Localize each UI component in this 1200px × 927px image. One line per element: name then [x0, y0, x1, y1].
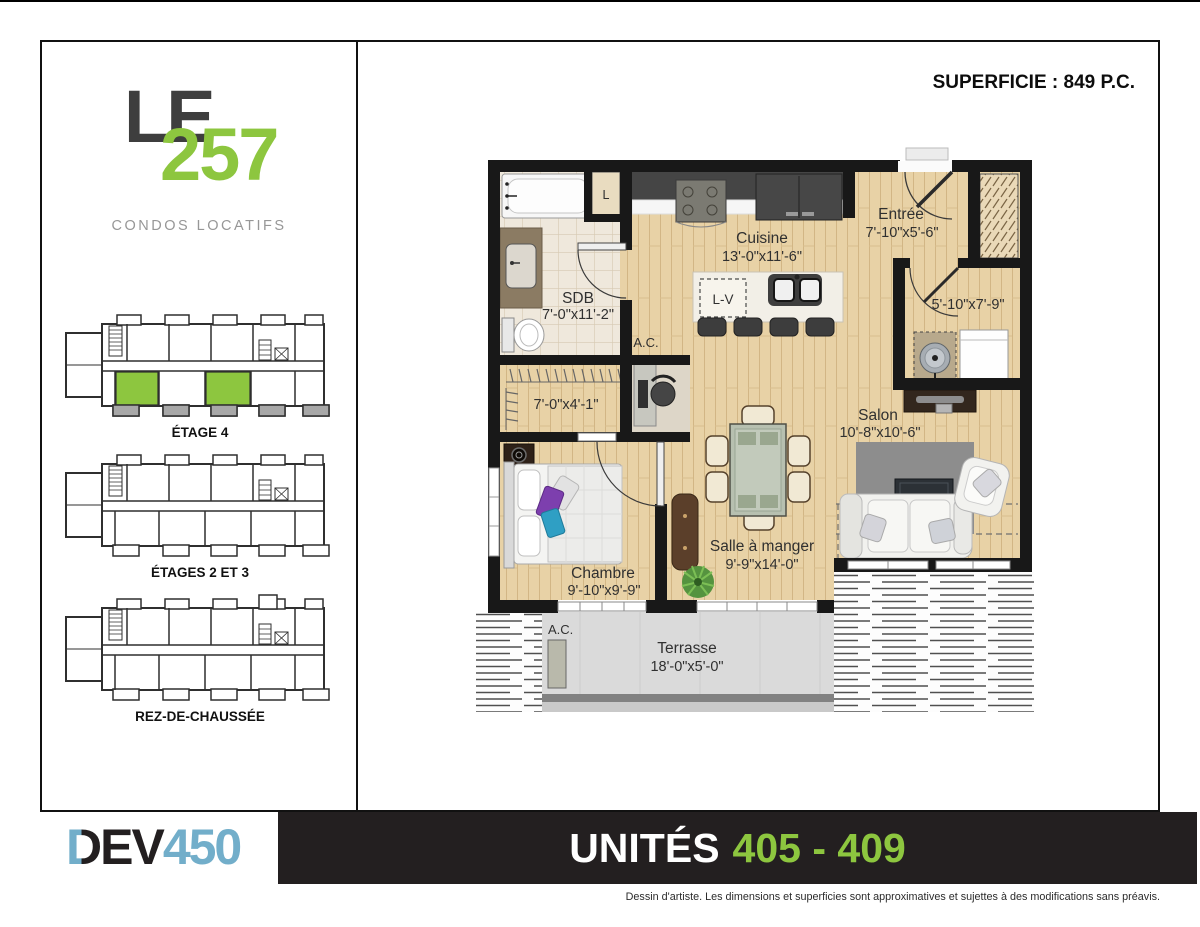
- headboard: [504, 462, 514, 568]
- building-plan-etages-2-3: ÉTAGES 2 ET 3: [63, 450, 337, 580]
- room-label-entree: Entrée: [878, 206, 924, 223]
- plan-panel: SUPERFICIE : 849 P.C.: [358, 42, 1158, 810]
- dev450-logo-d: D: [66, 819, 100, 875]
- label-lave-vaisselle: L-V: [712, 292, 733, 307]
- sidebar: LE 257 CONDOS LOCATIFS: [42, 42, 358, 810]
- room-dims-salle-a-manger: 9'-9"x14'-0": [725, 557, 798, 573]
- room-dims-terrasse: 18'-0"x5'-0": [650, 659, 723, 675]
- plant: [682, 566, 714, 598]
- label-ac: A.C.: [633, 335, 658, 350]
- building-plan-etage4-drawing: [63, 310, 335, 424]
- sofa: [840, 494, 972, 558]
- sideboard: [672, 494, 698, 570]
- building-plan-rdc: REZ-DE-CHAUSSÉE: [63, 594, 337, 724]
- disclaimer-text: Dessin d'artiste. Les dimensions et supe…: [626, 891, 1160, 903]
- entry-closet-hangers: [980, 174, 1018, 258]
- logo-tagline: CONDOS LOCATIFS: [42, 218, 356, 234]
- toilet: [502, 318, 544, 352]
- superficie-label: SUPERFICIE : 849 P.C.: [933, 72, 1135, 94]
- building-plan-rdc-drawing: [63, 594, 335, 708]
- page-top-edge: [0, 0, 1200, 2]
- brand-logo: LE 257 CONDOS LOCATIFS: [42, 42, 356, 282]
- stove: [676, 180, 726, 227]
- dev450-logo: DEV450: [66, 822, 240, 872]
- logo-number: 257: [160, 118, 277, 192]
- washer-dryer: [960, 330, 1008, 384]
- pillow: [518, 516, 540, 556]
- dev450-logo-num: 450: [163, 819, 240, 875]
- room-dims-entree: 7'-10"x5'-6": [865, 225, 938, 241]
- neighbor-area-left: [476, 613, 542, 712]
- room-label-cuisine: Cuisine: [736, 230, 788, 247]
- water-heater: [914, 332, 956, 384]
- refrigerator: [756, 174, 842, 220]
- units-banner-label: UNITÉS: [569, 825, 719, 872]
- neighbor-area-right: [834, 572, 1034, 712]
- room-dims-cuisine: 13'-0"x11'-6": [722, 249, 802, 265]
- dev450-logo-ev: EV: [100, 819, 163, 875]
- room-label-salle-a-manger: Salle à manger: [710, 538, 814, 555]
- building-plan-etages-2-3-drawing: [63, 450, 335, 564]
- pillow: [518, 470, 540, 510]
- units-banner-range: 405 - 409: [733, 825, 906, 872]
- vanity-sink: [500, 228, 542, 308]
- building-plan-etage4-label: ÉTAGE 4: [63, 425, 337, 440]
- building-plan-rdc-label: REZ-DE-CHAUSSÉE: [63, 709, 337, 724]
- room-dims-sdb: 7'-0"x11'-2": [542, 307, 614, 323]
- room-dims-rangement: 5'-10"x7'-9": [931, 297, 1004, 313]
- building-plan-etage4: ÉTAGE 4: [63, 310, 337, 440]
- room-dims-salon: 10'-8"x10'-6": [839, 425, 920, 441]
- content-frame: LE 257 CONDOS LOCATIFS: [40, 40, 1160, 812]
- room-dims-chambre: 9'-10"x9'-9": [567, 583, 640, 599]
- units-banner: UNITÉS 405 - 409: [278, 812, 1197, 884]
- room-label-sdb: SDB: [562, 290, 594, 307]
- media-console: [904, 390, 976, 413]
- label-ac-terrasse: A.C.: [548, 622, 573, 637]
- building-plan-etages-2-3-label: ÉTAGES 2 ET 3: [63, 565, 337, 580]
- ac-unit-terrasse: [548, 640, 566, 688]
- label-laveuse: L: [603, 188, 610, 202]
- room-dims-walkin: 7'-0"x4'-1": [534, 397, 599, 413]
- double-sink: [768, 274, 822, 306]
- unit-floorplan: SDB 7'-0"x11'-2" 7'-0"x4'-1" Chambre 9'-…: [460, 145, 1045, 730]
- room-label-salon: Salon: [858, 407, 898, 424]
- room-label-terrasse: Terrasse: [657, 640, 716, 657]
- brochure-page: LE 257 CONDOS LOCATIFS: [0, 0, 1200, 927]
- room-label-chambre: Chambre: [571, 565, 635, 582]
- bathtub: [502, 174, 594, 218]
- rdc-top-extension: [259, 595, 277, 609]
